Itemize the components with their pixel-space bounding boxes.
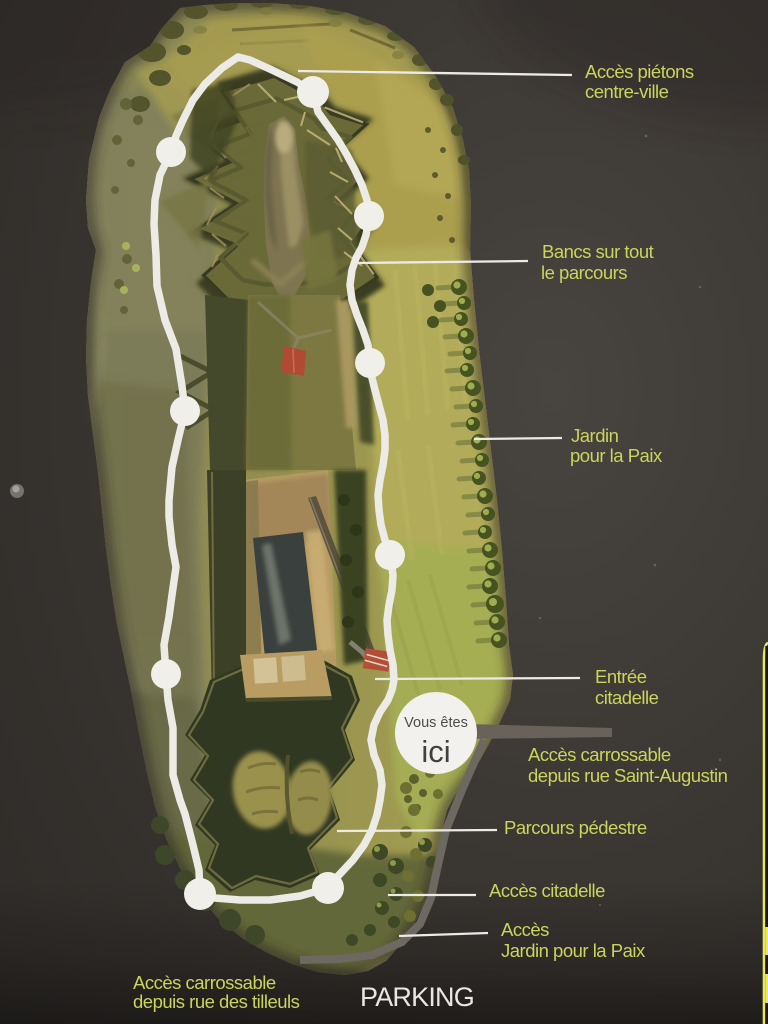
svg-text:ici: ici	[421, 734, 450, 769]
svg-text:centre-ville: centre-ville	[585, 81, 669, 102]
svg-text:Parcours pédestre: Parcours pédestre	[504, 817, 647, 838]
svg-text:Accès carrossable: Accès carrossable	[133, 972, 276, 993]
svg-text:Entrée: Entrée	[595, 666, 647, 687]
svg-text:Accès citadelle: Accès citadelle	[489, 880, 605, 901]
svg-text:Jardin: Jardin	[571, 425, 619, 446]
svg-text:depuis rue Saint-Augustin: depuis rue Saint-Augustin	[528, 765, 728, 786]
svg-text:depuis rue des tilleuls: depuis rue des tilleuls	[133, 991, 300, 1012]
svg-text:le parcours: le parcours	[541, 262, 627, 283]
svg-text:Accès: Accès	[501, 919, 549, 940]
svg-text:Vous êtes: Vous êtes	[404, 715, 468, 731]
svg-text:citadelle: citadelle	[595, 687, 659, 708]
svg-text:Accès carrossable: Accès carrossable	[528, 744, 671, 765]
svg-text:pour la Paix: pour la Paix	[570, 445, 663, 466]
svg-text:Jardin pour la Paix: Jardin pour la Paix	[501, 940, 646, 961]
svg-text:Accès piétons: Accès piétons	[585, 61, 694, 82]
svg-text:PARKING: PARKING	[360, 982, 474, 1012]
svg-text:Bancs sur tout: Bancs sur tout	[542, 241, 654, 262]
